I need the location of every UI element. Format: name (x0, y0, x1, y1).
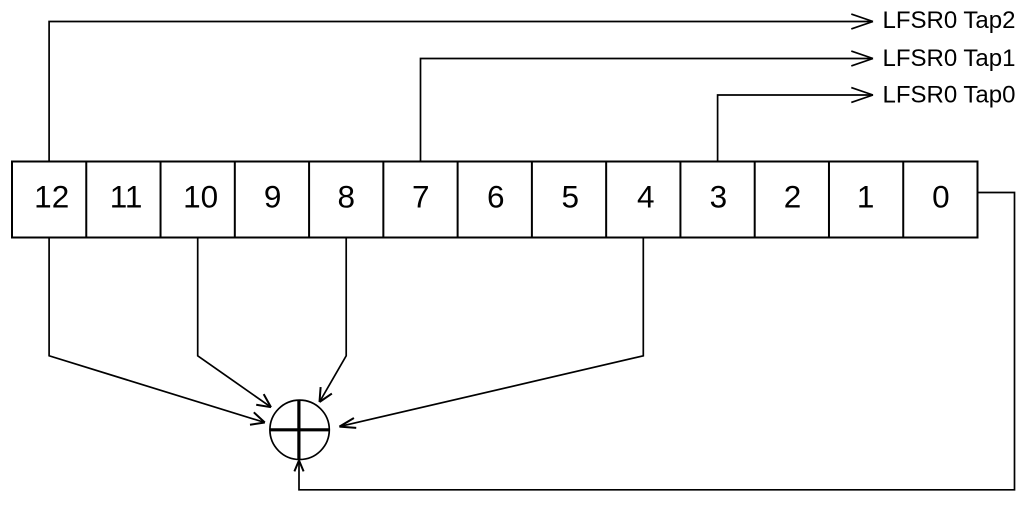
svg-text:LFSR0 Tap0: LFSR0 Tap0 (883, 82, 1016, 109)
svg-text:0: 0 (932, 179, 950, 215)
svg-text:4: 4 (637, 179, 655, 215)
svg-text:1: 1 (857, 179, 875, 215)
svg-text:6: 6 (487, 179, 505, 215)
svg-text:LFSR0 Tap1: LFSR0 Tap1 (883, 45, 1016, 72)
svg-text:2: 2 (784, 179, 802, 215)
svg-text:9: 9 (264, 179, 282, 215)
svg-text:5: 5 (562, 179, 580, 215)
svg-text:12: 12 (34, 179, 69, 215)
svg-text:3: 3 (710, 179, 728, 215)
svg-text:LFSR0 Tap2: LFSR0 Tap2 (883, 7, 1016, 34)
svg-text:10: 10 (183, 179, 218, 215)
svg-text:8: 8 (338, 179, 356, 215)
svg-text:11: 11 (110, 179, 143, 215)
svg-text:7: 7 (412, 179, 430, 215)
